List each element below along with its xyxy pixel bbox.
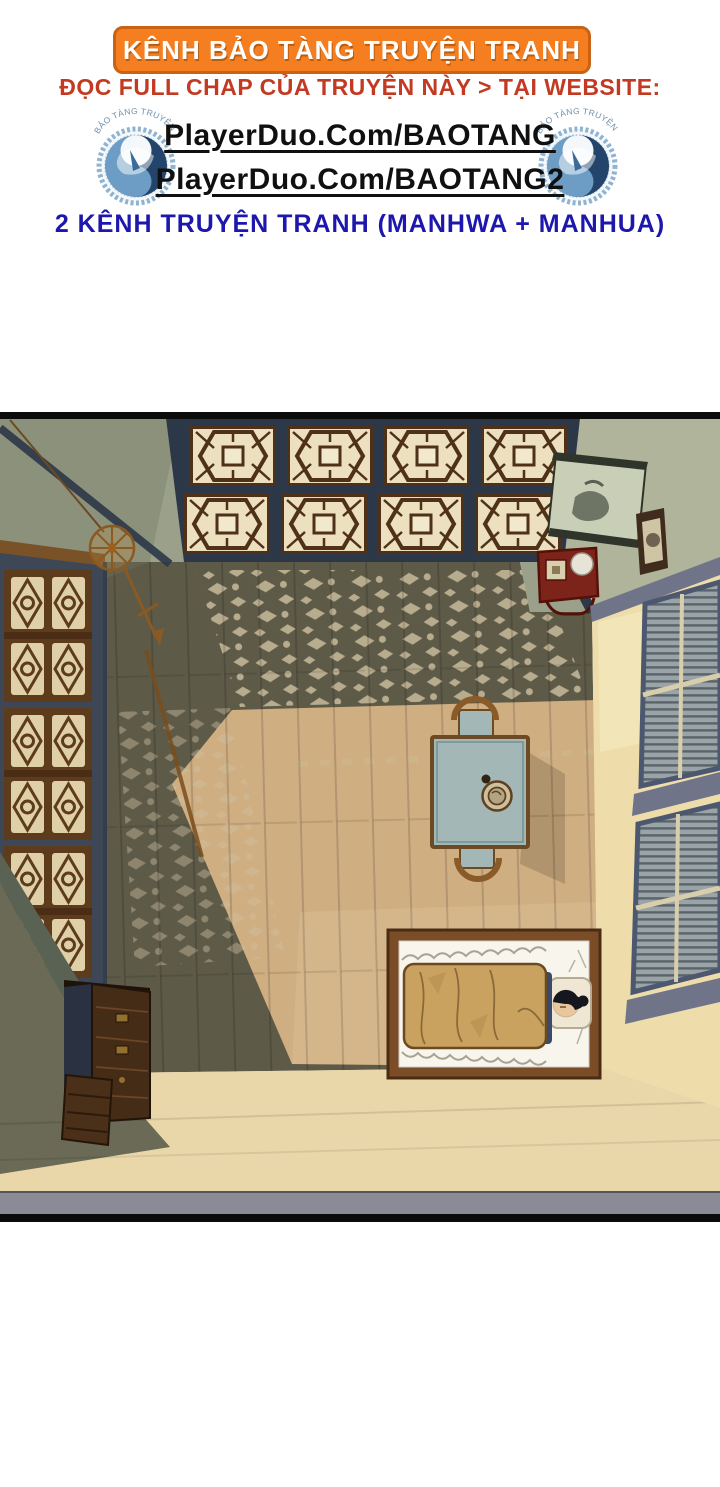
skylight-lattice [166, 418, 580, 562]
channels-note: 2 KÊNH TRUYỆN TRANH (MANHWA + MANHUA) [0, 210, 720, 239]
teapot [482, 775, 491, 784]
stool [62, 1075, 112, 1145]
shutter-window-lower [633, 804, 720, 992]
right-wall [590, 557, 720, 1108]
panel-border-bottom [0, 1214, 720, 1222]
read-full-note: ĐỌC FULL CHAP CỦA TRUYỆN NÀY > TẠI WEBSI… [0, 74, 720, 101]
blanket [404, 964, 546, 1048]
bed [388, 930, 600, 1078]
panel-border-top [0, 412, 720, 419]
teacup [483, 782, 512, 811]
webtoon-page: KÊNH BẢO TÀNG TRUYỆN TRANH ĐỌC FULL CHAP… [0, 0, 720, 1487]
playerduo-link-2: PlayerDuo.Com/BAOTANG2 [0, 163, 720, 197]
channel-banner: KÊNH BẢO TÀNG TRUYỆN TRANH [113, 26, 591, 74]
wall-frame-small [636, 508, 668, 575]
tea-table [432, 737, 528, 847]
comic-panel [0, 412, 720, 1222]
playerduo-link-1: PlayerDuo.Com/BAOTANG [0, 119, 720, 153]
shutter-window-upper [641, 582, 720, 786]
hanging-scroll [548, 452, 648, 548]
